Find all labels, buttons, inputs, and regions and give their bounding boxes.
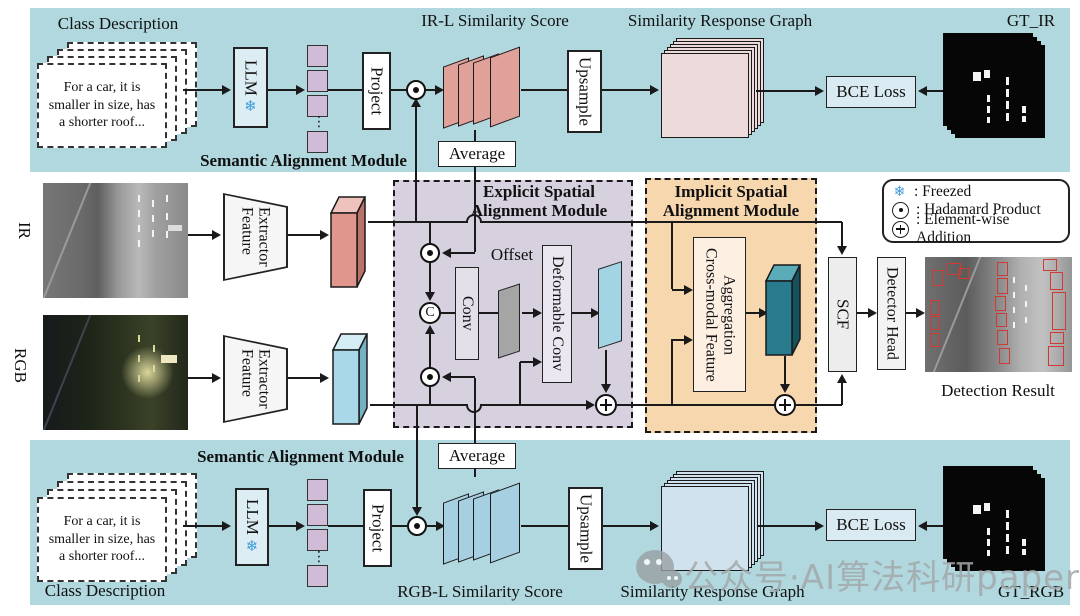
top-llm-box: LLM ❄ [233,47,268,128]
implicit-module-title: Implicit Spatial Alignment Module [653,182,809,220]
aligned-rgb-feature-map [598,261,622,349]
bottom-llm-box: LLM ❄ [235,488,269,566]
ellipsis-icon: ⋮ [312,549,326,565]
gt-ir-mask [955,45,1045,138]
detector-head-box: Detector Head [877,257,906,370]
bottom-upsample-box: Upsample [568,487,603,570]
cross-modal-label: Cross-modal Feature [702,248,720,382]
explicit-ir-hadamard-icon [420,243,440,263]
top-semantic-module-label: Semantic Alignment Module [196,151,411,171]
explicit-rgb-hadamard-icon [420,367,440,387]
feature-extractor-label: Feature [239,349,256,409]
offset-feature-map [498,283,520,358]
deformable-conv-box: Deformable Conv [542,245,572,383]
snowflake-icon: ❄ [892,184,907,200]
legend-row-freezed: ❄ : Freezed [892,183,1060,201]
top-upsample-box: Upsample [567,50,602,133]
ir-input-image [43,183,188,298]
gt-ir-title: GT_IR [975,11,1080,31]
detection-result-label: Detection Result [918,381,1078,401]
cross-modal-label: Aggregation [720,248,738,382]
top-bce-loss-box: BCE Loss [826,76,916,108]
top-text-embedding-4 [307,131,328,153]
hadamard-icon [892,202,909,219]
offset-label: Offset [485,245,539,265]
top-project-label: Project [367,67,387,115]
ir-response-graph [661,53,749,138]
ellipsis-icon: ⋮ [312,114,326,130]
snowflake-icon: ❄ [244,97,257,115]
legend-freezed-label: : Freezed [914,183,971,201]
bottom-score-title: RGB-L Similarity Score [390,582,570,602]
feature-extractor-label: Extractor [256,349,273,409]
top-text-embedding-1 [307,45,328,67]
concat-label: C [425,305,434,321]
top-description-card: For a car, it is smaller in size, has a … [37,63,167,148]
top-project-box: Project [362,52,391,130]
fused-feature-map [765,264,802,356]
bottom-project-label: Project [368,504,388,552]
bottom-bce-loss-box: BCE Loss [826,509,916,541]
top-score-title: IR-L Similarity Score [405,11,585,31]
bottom-average-label: Average [449,446,505,466]
top-hadamard-icon [406,80,426,100]
bottom-llm-label: LLM [242,499,262,535]
feature-extractor-label: Feature [239,207,256,267]
legend: ❄ : Freezed : Hadamard Product : Element… [882,179,1070,243]
bottom-text-embedding-3 [307,529,328,551]
scf-label: SCF [833,299,853,329]
bottom-upsample-label: Upsample [576,494,596,563]
cross-modal-aggregation-box: Cross-modal Feature Aggregation [693,237,746,392]
bottom-class-description-title: Class Description [25,581,185,601]
snowflake-icon: ❄ [246,537,259,555]
feature-extractor-label: Extractor [256,207,273,267]
architecture-diagram: Explicit Spatial Alignment Module Implic… [0,0,1080,616]
concat-icon: C [419,302,441,324]
ir-input-label: IR [14,222,34,239]
rgb-feature-map [332,333,369,425]
top-upsample-label: Upsample [575,57,595,126]
explicit-add-icon [595,394,617,416]
legend-row-add: : Element-wise Addition [892,219,1060,239]
ir-feature-extractor: Feature Extractor [223,193,288,281]
bottom-hadamard-icon [407,516,427,536]
bottom-semantic-module-label: Semantic Alignment Module [193,447,408,467]
bottom-description-card: For a car, it is smaller in size, has a … [37,497,167,582]
top-bce-loss-label: BCE Loss [836,82,905,102]
conv-label: Conv [458,296,476,331]
rgb-input-image [43,315,188,430]
top-text-embedding-2 [307,70,328,92]
ir-l-score-sheet [490,47,520,128]
conv-box: Conv [455,267,479,360]
scf-box: SCF [828,257,857,372]
implicit-add-icon [774,394,796,416]
ir-feature-map [330,196,367,288]
rgb-l-score-sheet [490,483,520,564]
bottom-bce-loss-label: BCE Loss [836,515,905,535]
bottom-project-box: Project [363,489,392,567]
bottom-text-embedding-2 [307,504,328,526]
rgb-input-label: RGB [10,348,30,383]
top-average-label: Average [449,144,505,164]
top-average-box: Average [438,141,516,167]
deformable-conv-label: Deformable Conv [548,256,566,371]
rgb-feature-extractor: Feature Extractor [223,335,288,423]
legend-add-label: : Element-wise Addition [916,211,1060,247]
top-llm-label: LLM [241,60,261,96]
bottom-average-box: Average [438,443,516,469]
bottom-text-embedding-4 [307,565,328,587]
detector-head-label: Detector Head [883,267,901,360]
top-response-graph-title: Similarity Response Graph [625,11,815,31]
bottom-text-embedding-1 [307,479,328,501]
watermark-text: 公众号·AI算法科研paper [684,550,1080,599]
wechat-watermark-icon [636,550,674,584]
add-icon [892,221,909,238]
top-class-description-title: Class Description [38,14,198,34]
